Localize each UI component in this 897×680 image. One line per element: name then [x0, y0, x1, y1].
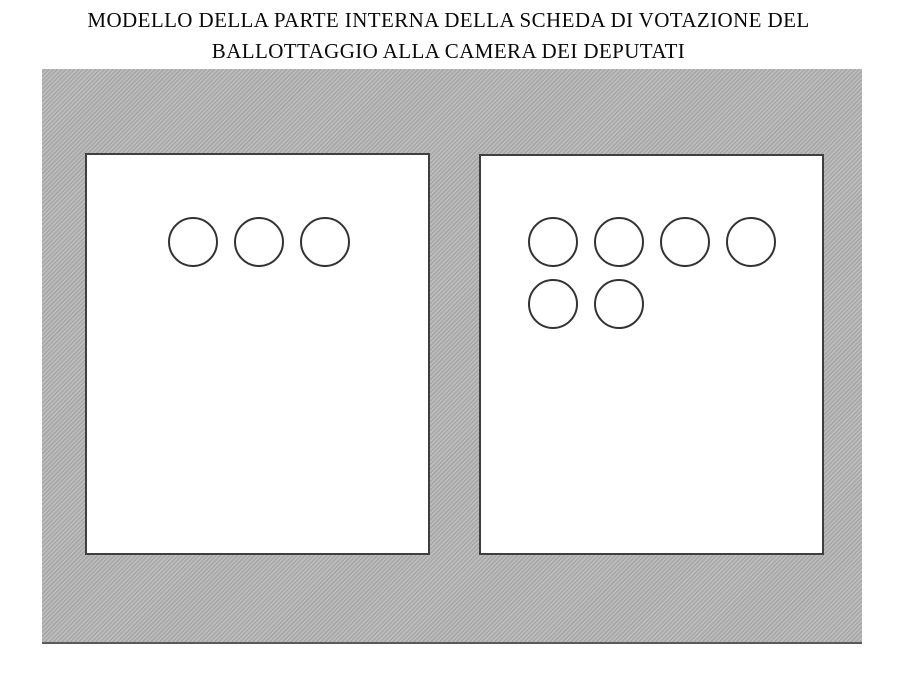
vote-circle	[300, 217, 350, 267]
vote-circle	[660, 217, 710, 267]
ballot-panel-left	[85, 153, 430, 555]
vote-circle	[594, 279, 644, 329]
ballot-panel-right	[479, 154, 824, 555]
vote-circle-row	[528, 217, 822, 267]
vote-circle	[726, 217, 776, 267]
vote-circle	[234, 217, 284, 267]
page-title-line-1: MODELLO DELLA PARTE INTERNA DELLA SCHEDA…	[0, 5, 897, 36]
page-title: MODELLO DELLA PARTE INTERNA DELLA SCHEDA…	[0, 5, 897, 67]
vote-circle	[528, 217, 578, 267]
vote-circle	[528, 279, 578, 329]
vote-circle-row	[528, 279, 822, 329]
vote-circle	[168, 217, 218, 267]
vote-circle-row	[168, 217, 428, 267]
vote-circle	[594, 217, 644, 267]
hatched-ballot-background	[42, 69, 862, 644]
page-title-line-2: BALLOTTAGGIO ALLA CAMERA DEI DEPUTATI	[0, 36, 897, 67]
